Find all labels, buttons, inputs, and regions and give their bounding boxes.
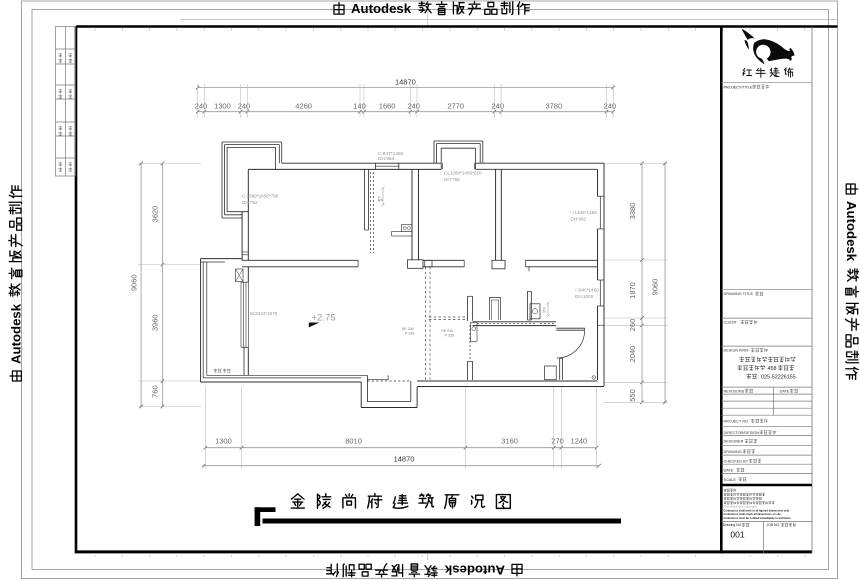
svg-text:DH:1000: DH:1000 xyxy=(575,294,594,299)
svg-text:+2.75: +2.75 xyxy=(312,312,336,323)
svg-text:9060: 9060 xyxy=(651,279,660,296)
svg-text:Contractors must be notified: Contractors must be notified immediately… xyxy=(724,516,792,520)
svg-text:PROJECT NO.: PROJECT NO. xyxy=(724,419,749,423)
svg-text:3380: 3380 xyxy=(628,203,637,220)
svg-text:REVISIONS: REVISIONS xyxy=(724,389,745,393)
svg-text:1660: 1660 xyxy=(379,102,396,111)
svg-text:Autodesk: Autodesk xyxy=(844,201,859,262)
svg-text:140: 140 xyxy=(353,102,366,111)
svg-text:1240: 1240 xyxy=(571,437,588,446)
svg-text:DATE: DATE xyxy=(724,468,734,472)
svg-text:240: 240 xyxy=(238,102,251,111)
svg-text:□:840*1460: □:840*1460 xyxy=(575,288,599,293)
svg-text:2770: 2770 xyxy=(447,102,464,111)
svg-text:240: 240 xyxy=(407,102,420,111)
svg-text:14870: 14870 xyxy=(394,455,415,464)
svg-text:260: 260 xyxy=(628,319,637,332)
svg-text:240: 240 xyxy=(604,102,617,111)
svg-text:DATE: DATE xyxy=(780,389,790,393)
svg-text:270: 270 xyxy=(551,437,564,446)
svg-text:KE 240: KE 240 xyxy=(402,327,414,331)
svg-text:1870: 1870 xyxy=(628,282,637,299)
svg-text:001: 001 xyxy=(730,530,744,540)
svg-text:4260: 4260 xyxy=(295,102,312,111)
svg-text:1300: 1300 xyxy=(215,437,232,446)
svg-text:DESIGN FIRM: DESIGN FIRM xyxy=(724,349,749,353)
svg-text:3960: 3960 xyxy=(151,314,160,331)
svg-text:KE 240: KE 240 xyxy=(442,329,454,333)
svg-text:3780: 3780 xyxy=(545,102,562,111)
svg-text:DH:962: DH:962 xyxy=(571,216,587,221)
svg-text:DIRECTOR/DESIGN: DIRECTOR/DESIGN xyxy=(724,431,760,435)
svg-text:DRAWING: DRAWING xyxy=(724,450,742,454)
svg-text:1300: 1300 xyxy=(214,102,231,111)
svg-text:240: 240 xyxy=(195,102,208,111)
svg-text:PROJECT/TITLE: PROJECT/TITLE xyxy=(724,86,754,90)
svg-text:8010: 8010 xyxy=(345,437,362,446)
svg-text:Drawing NO.: Drawing NO. xyxy=(723,523,742,527)
svg-text:DH:964: DH:964 xyxy=(378,156,395,162)
svg-text:3620: 3620 xyxy=(151,206,160,223)
svg-text:Contractors shall check all di: Contractors shall check all dimensions o… xyxy=(724,512,782,516)
svg-text:P 335: P 335 xyxy=(405,332,414,336)
svg-text:□:1445*1456: □:1445*1456 xyxy=(571,210,598,215)
svg-text:14870: 14870 xyxy=(395,78,416,87)
svg-text:458: 458 xyxy=(768,366,777,372)
svg-text:: 025-52226155: : 025-52226155 xyxy=(758,375,796,381)
svg-text:Autodesk: Autodesk xyxy=(444,562,505,577)
svg-text:C:1569*1656*790: C:1569*1656*790 xyxy=(242,194,279,199)
svg-text:2040: 2040 xyxy=(628,346,637,363)
svg-text:850: 850 xyxy=(543,307,547,313)
svg-text:DH:752: DH:752 xyxy=(242,200,258,205)
svg-text:DESIGNER: DESIGNER xyxy=(724,440,744,444)
svg-text:SCALE: SCALE xyxy=(724,478,737,482)
svg-text:CLIENT: CLIENT xyxy=(724,321,738,325)
svg-text:JOB NO.: JOB NO. xyxy=(767,523,781,527)
svg-text:CL1280*1456*810: CL1280*1456*810 xyxy=(444,171,482,176)
svg-text:P 335: P 335 xyxy=(445,334,454,338)
svg-text:Contractors shall work to all: Contractors shall work to all figured di… xyxy=(724,508,790,512)
svg-text:Autodesk: Autodesk xyxy=(9,303,24,364)
svg-text:CHECKED BY: CHECKED BY xyxy=(724,459,749,463)
svg-text:Autodesk: Autodesk xyxy=(351,1,412,16)
svg-text:760: 760 xyxy=(151,385,160,398)
svg-text:240: 240 xyxy=(491,102,504,111)
svg-text:3160: 3160 xyxy=(501,437,518,446)
svg-text:DRAWING TITLE: DRAWING TITLE xyxy=(724,292,754,296)
svg-text:o b: o b xyxy=(378,198,383,202)
svg-text:M:2343*2370: M:2343*2370 xyxy=(250,311,278,316)
svg-text:9060: 9060 xyxy=(130,274,139,291)
svg-text:550: 550 xyxy=(628,389,637,402)
svg-text:This drawing is copyright: This drawing is copyright xyxy=(724,505,757,509)
svg-text:DH:756: DH:756 xyxy=(444,177,460,182)
